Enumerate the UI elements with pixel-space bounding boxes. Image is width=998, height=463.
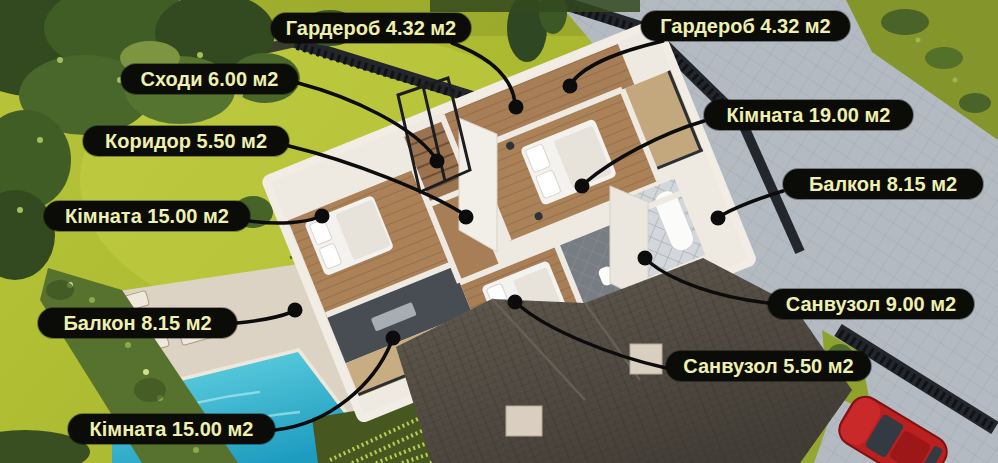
leader-dot-bathroom-55 [508,295,523,310]
leader-dot-room-15-bottom [386,331,401,346]
leader-dot-corridor [459,210,474,225]
leader-dot-room-15-left [315,209,330,224]
leader-dot-wardrobe-left [509,100,524,115]
leader-line-room-19 [586,121,704,182]
leader-dot-wardrobe-right [563,79,578,94]
leader-dot-room-19 [575,179,590,194]
leader-line-wardrobe-left [452,43,515,103]
floor-plan-render: Гардероб 4.32 м2Гардероб 4.32 м2Сходи 6.… [0,0,998,463]
leader-line-bathroom-9 [649,262,768,303]
leader-lines-layer [0,0,998,463]
leader-line-bathroom-55 [520,306,666,368]
leader-line-room-15-left [250,217,319,223]
leader-line-stairs [298,83,434,156]
leader-line-balcony-right [722,191,783,215]
leader-dot-balcony-right [711,211,726,226]
leader-line-wardrobe-right [572,41,663,82]
leader-dot-bathroom-9 [638,251,653,266]
leader-line-balcony-left [237,312,292,323]
leader-dot-balcony-left [288,303,303,318]
leader-line-room-15-bottom [275,343,391,430]
leader-dot-stairs [430,154,445,169]
